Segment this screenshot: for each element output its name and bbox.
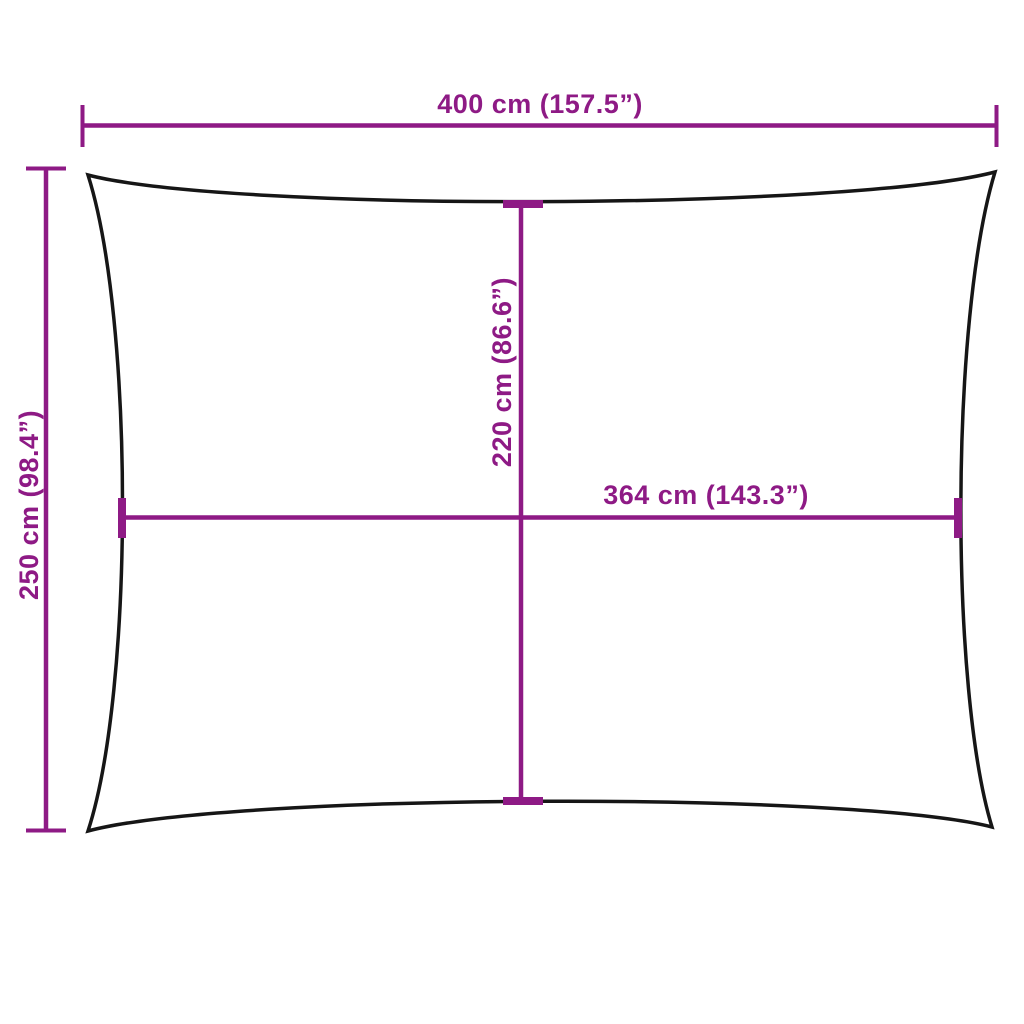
center-height-dimension-label: 220 cm (86.6”)	[487, 277, 517, 467]
left-height-dimension-label: 250 cm (98.4”)	[14, 410, 44, 600]
top-width-dimension-label: 400 cm (157.5”)	[437, 89, 643, 119]
diagram-background	[0, 0, 1024, 1024]
dimension-diagram: 400 cm (157.5”) 250 cm (98.4”) 220 cm (8…	[0, 0, 1024, 1024]
center-width-dimension-label: 364 cm (143.3”)	[603, 480, 809, 510]
diagram-canvas: 400 cm (157.5”) 250 cm (98.4”) 220 cm (8…	[0, 0, 1024, 1024]
